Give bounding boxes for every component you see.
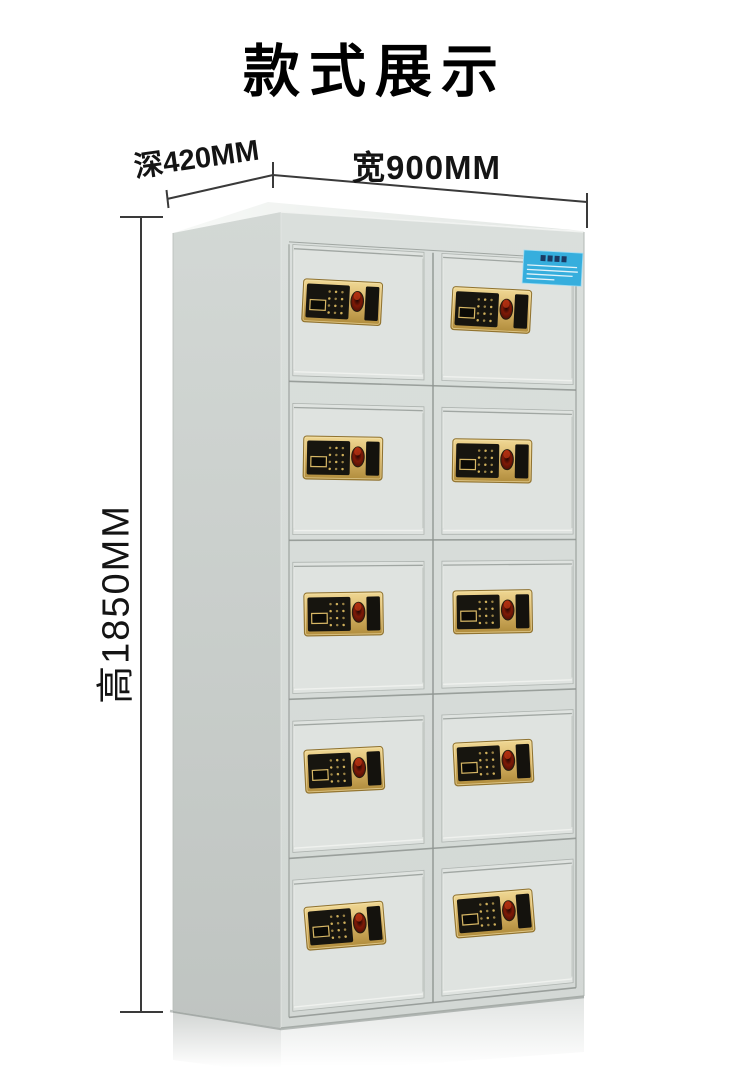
lock-cover-panel: [515, 594, 529, 628]
electronic-lock: [452, 439, 532, 483]
electronic-lock: [453, 739, 534, 786]
lock-cover-panel: [515, 444, 529, 478]
lock-cover-panel: [513, 294, 528, 329]
lock-display-window: [461, 611, 477, 621]
lock-cover-panel: [364, 286, 379, 321]
lock-display-window: [461, 762, 477, 773]
product-info-label: [522, 250, 583, 286]
lock-cover-panel: [366, 751, 381, 786]
lock-display-window: [462, 914, 478, 925]
lock-cover-panel: [516, 744, 531, 779]
lock-display-window: [313, 926, 329, 937]
lock-cover-panel: [366, 906, 382, 941]
electronic-lock: [453, 590, 533, 634]
electronic-lock: [304, 592, 384, 636]
electronic-lock: [302, 279, 383, 326]
electronic-lock: [304, 746, 385, 793]
lock-display-window: [460, 459, 476, 469]
width-dimension-label: 宽900MM: [352, 141, 501, 189]
electronic-lock: [304, 901, 386, 950]
electronic-lock: [451, 287, 532, 334]
lock-display-window: [312, 770, 328, 781]
height-dimension-label: 高1850MM: [85, 504, 140, 704]
lock-display-window: [312, 613, 328, 623]
lock-display-window: [311, 457, 327, 467]
cabinet-side-face: [173, 212, 281, 1028]
electronic-lock: [303, 436, 383, 480]
electronic-lock: [453, 889, 535, 938]
lock-cover-panel: [366, 441, 380, 475]
lock-display-window: [459, 307, 475, 318]
product-showcase: 款式展示: [0, 0, 750, 1074]
lock-cover-panel: [516, 894, 532, 929]
lock-display-window: [310, 300, 326, 311]
lock-cover-panel: [366, 596, 380, 630]
